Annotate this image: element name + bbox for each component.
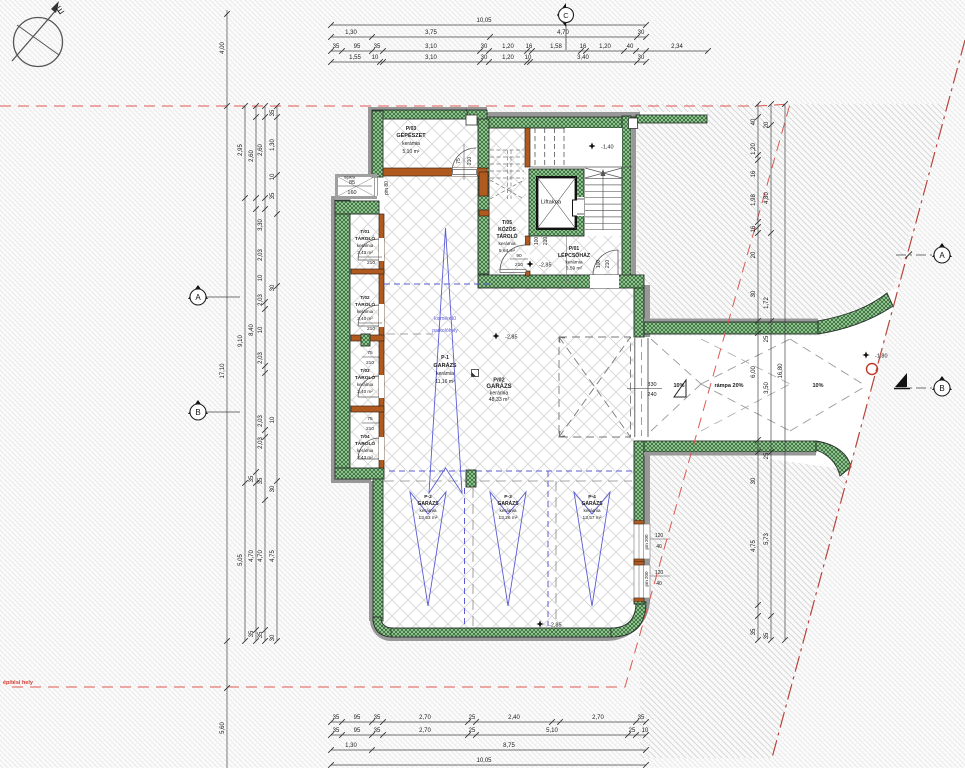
svg-text:kerámia: kerámia	[490, 391, 509, 397]
svg-text:30: 30	[638, 55, 645, 61]
svg-text:-1,40: -1,40	[601, 145, 614, 151]
svg-text:10: 10	[642, 728, 649, 734]
svg-text:T/01: T/01	[360, 229, 370, 234]
svg-text:25: 25	[469, 715, 476, 721]
svg-text:2,60: 2,60	[249, 150, 255, 162]
svg-text:95: 95	[354, 44, 361, 50]
svg-text:C: C	[563, 11, 569, 20]
svg-text:100: 100	[596, 260, 602, 269]
svg-text:4,75: 4,75	[270, 550, 276, 562]
svg-text:1,98: 1,98	[751, 194, 757, 206]
svg-text:TÁROLÓ: TÁROLÓ	[496, 232, 517, 240]
svg-text:kerámia: kerámia	[436, 371, 454, 377]
svg-text:3,59 m²: 3,59 m²	[566, 266, 583, 272]
svg-text:pm 200: pm 200	[644, 571, 649, 587]
svg-text:4,00: 4,00	[220, 42, 226, 54]
svg-text:35: 35	[270, 109, 276, 116]
svg-text:160: 160	[347, 190, 356, 196]
svg-text:A: A	[195, 293, 201, 302]
svg-text:210: 210	[543, 237, 549, 246]
svg-text:35: 35	[374, 44, 381, 50]
svg-text:3,30: 3,30	[258, 219, 264, 231]
svg-text:kerámia: kerámia	[402, 141, 420, 147]
svg-text:8,40: 8,40	[249, 324, 255, 336]
svg-text:-2,85: -2,85	[505, 335, 518, 341]
svg-text:GARÁZS: GARÁZS	[581, 500, 603, 507]
svg-text:kerámia: kerámia	[499, 508, 516, 514]
svg-text:210: 210	[605, 260, 611, 269]
svg-text:35: 35	[249, 630, 255, 637]
svg-text:4,75: 4,75	[751, 540, 757, 552]
svg-text:építési hely: építési hely	[3, 680, 34, 686]
svg-text:1,30: 1,30	[270, 139, 276, 151]
svg-text:1,55: 1,55	[349, 55, 361, 61]
svg-text:3,10: 3,10	[425, 44, 437, 50]
svg-text:LÉPCSŐHÁZ: LÉPCSŐHÁZ	[558, 251, 591, 259]
svg-text:10: 10	[258, 274, 264, 281]
svg-text:1,72: 1,72	[764, 297, 770, 309]
svg-text:95: 95	[354, 728, 361, 734]
svg-text:10: 10	[270, 173, 276, 180]
svg-text:2,03: 2,03	[258, 437, 264, 449]
svg-text:10: 10	[270, 416, 276, 423]
svg-text:30: 30	[270, 634, 276, 641]
svg-text:20: 20	[764, 121, 770, 128]
svg-text:13,63 m²: 13,63 m²	[419, 515, 438, 521]
svg-text:2,03: 2,03	[258, 415, 264, 427]
svg-text:2,03: 2,03	[258, 352, 264, 364]
svg-text:5,10 m²: 5,10 m²	[403, 149, 420, 155]
svg-text:-2,85: -2,85	[549, 623, 562, 629]
svg-text:T/04: T/04	[360, 434, 370, 439]
svg-text:GARÁZS: GARÁZS	[486, 383, 511, 390]
svg-text:10: 10	[372, 55, 379, 61]
svg-text:35: 35	[258, 477, 264, 484]
svg-text:pm 80: pm 80	[384, 181, 390, 195]
svg-text:kerámia: kerámia	[357, 448, 374, 453]
svg-text:P/01: P/01	[569, 246, 580, 252]
svg-text:rámpa 20%: rámpa 20%	[714, 383, 743, 389]
svg-text:kerámia: kerámia	[565, 260, 582, 266]
svg-text:2,70: 2,70	[592, 715, 604, 721]
svg-text:kerámia: kerámia	[357, 309, 374, 314]
svg-text:kerámia: kerámia	[583, 508, 600, 514]
svg-text:3,50: 3,50	[764, 382, 770, 394]
svg-text:10,05: 10,05	[476, 18, 492, 24]
svg-text:85: 85	[349, 180, 355, 186]
svg-text:35: 35	[751, 628, 757, 635]
svg-text:25: 25	[469, 728, 476, 734]
svg-text:1,58: 1,58	[550, 44, 562, 50]
svg-text:210: 210	[367, 326, 375, 332]
svg-text:10: 10	[258, 326, 264, 333]
svg-text:5,10: 5,10	[546, 728, 558, 734]
svg-text:1,20: 1,20	[502, 44, 514, 50]
svg-text:kerámia: kerámia	[357, 243, 374, 248]
svg-text:75: 75	[367, 350, 373, 356]
svg-text:GARÁZS: GARÁZS	[497, 500, 519, 507]
svg-text:16: 16	[751, 170, 757, 177]
svg-text:2,43 m²: 2,43 m²	[357, 250, 373, 255]
svg-text:T/02: T/02	[360, 295, 370, 300]
svg-text:90: 90	[516, 253, 522, 259]
svg-text:10%: 10%	[673, 383, 684, 389]
svg-text:35: 35	[374, 728, 381, 734]
svg-text:10,05: 10,05	[476, 758, 492, 764]
svg-text:-2,85: -2,85	[539, 263, 552, 269]
svg-text:13,57 m²: 13,57 m²	[583, 515, 602, 521]
svg-text:35: 35	[333, 44, 340, 50]
svg-text:2,34: 2,34	[671, 44, 683, 50]
svg-text:T/03: T/03	[360, 368, 370, 373]
svg-text:légakna: légakna	[344, 176, 355, 180]
svg-text:35: 35	[374, 715, 381, 721]
svg-text:A: A	[939, 251, 945, 260]
svg-text:35: 35	[764, 632, 770, 639]
svg-text:40: 40	[656, 544, 662, 550]
svg-text:330: 330	[647, 382, 656, 388]
svg-text:kerámia: kerámia	[357, 382, 374, 387]
svg-text:GARÁZS: GARÁZS	[417, 500, 439, 507]
svg-text:2,95: 2,95	[238, 144, 244, 156]
svg-text:120: 120	[655, 570, 664, 576]
svg-text:35: 35	[333, 728, 340, 734]
svg-text:210: 210	[366, 426, 374, 432]
svg-text:16: 16	[751, 225, 757, 232]
svg-text:B: B	[195, 408, 200, 417]
svg-text:40: 40	[627, 44, 634, 50]
svg-text:240: 240	[647, 392, 656, 398]
svg-text:5,05: 5,05	[238, 554, 244, 566]
svg-text:20: 20	[751, 251, 757, 258]
svg-text:210: 210	[515, 262, 523, 268]
svg-text:30: 30	[638, 30, 645, 36]
svg-text:2,03: 2,03	[258, 294, 264, 306]
svg-text:5,73: 5,73	[764, 533, 770, 545]
svg-text:25: 25	[764, 335, 770, 342]
svg-text:40: 40	[751, 118, 757, 125]
svg-text:30: 30	[751, 290, 757, 297]
svg-text:kerámia: kerámia	[419, 508, 436, 514]
svg-text:17,10: 17,10	[220, 363, 226, 379]
svg-text:120: 120	[655, 533, 664, 539]
svg-text:P/03: P/03	[406, 126, 417, 132]
svg-text:75: 75	[367, 416, 373, 422]
svg-text:30: 30	[270, 284, 276, 291]
svg-text:kerámia: kerámia	[498, 241, 515, 247]
svg-text:2,40: 2,40	[508, 715, 520, 721]
svg-text:10: 10	[525, 55, 532, 61]
svg-text:95: 95	[354, 715, 361, 721]
svg-text:1,20: 1,20	[751, 143, 757, 155]
svg-text:210: 210	[366, 360, 374, 366]
svg-text:210: 210	[467, 157, 473, 166]
svg-text:210: 210	[367, 260, 375, 266]
svg-text:4,70: 4,70	[557, 30, 569, 36]
svg-text:40: 40	[656, 581, 662, 587]
svg-text:3,10: 3,10	[425, 55, 437, 61]
svg-text:2,40 m²: 2,40 m²	[357, 316, 373, 321]
svg-text:35: 35	[333, 715, 340, 721]
svg-text:11,16 m²: 11,16 m²	[435, 379, 455, 385]
svg-text:9,10: 9,10	[238, 335, 244, 347]
svg-text:4,80: 4,80	[764, 192, 770, 204]
svg-text:75: 75	[456, 158, 462, 164]
svg-text:P-3: P-3	[504, 494, 512, 500]
svg-text:B: B	[939, 384, 944, 393]
svg-text:4,70: 4,70	[258, 550, 264, 562]
svg-text:parkolóhely: parkolóhely	[432, 328, 458, 334]
svg-text:35: 35	[258, 631, 264, 638]
svg-text:30: 30	[270, 485, 276, 492]
svg-text:5,64 m²: 5,64 m²	[499, 248, 516, 254]
svg-text:2,03: 2,03	[258, 249, 264, 261]
svg-text:Liftakna: Liftakna	[541, 200, 562, 206]
svg-text:P-2: P-2	[424, 494, 432, 500]
svg-text:2,43 m²: 2,43 m²	[357, 455, 373, 460]
svg-text:P-4: P-4	[588, 494, 596, 500]
svg-text:3,75: 3,75	[425, 30, 437, 36]
svg-text:5,60: 5,60	[220, 722, 226, 734]
svg-text:3,40: 3,40	[577, 55, 589, 61]
svg-text:6,00: 6,00	[751, 366, 757, 378]
svg-text:1,30: 1,30	[345, 30, 357, 36]
svg-text:2,70: 2,70	[419, 715, 431, 721]
svg-text:100: 100	[534, 237, 540, 246]
svg-text:35: 35	[249, 475, 255, 482]
svg-text:2,40 m²: 2,40 m²	[357, 389, 373, 394]
svg-text:1,20: 1,20	[502, 55, 514, 61]
svg-text:30: 30	[751, 477, 757, 484]
svg-text:2,60: 2,60	[258, 144, 264, 156]
svg-text:35: 35	[638, 715, 645, 721]
svg-text:P-1: P-1	[441, 355, 449, 361]
svg-text:8,75: 8,75	[503, 743, 515, 749]
svg-text:kisméretű: kisméretű	[434, 316, 456, 322]
svg-text:-1,80: -1,80	[875, 354, 888, 360]
svg-text:GÉPÉSZET: GÉPÉSZET	[396, 131, 426, 139]
svg-text:35: 35	[270, 192, 276, 199]
svg-text:1,20: 1,20	[599, 44, 611, 50]
svg-text:4,70: 4,70	[249, 550, 255, 562]
svg-text:2,70: 2,70	[419, 728, 431, 734]
svg-text:pm 200: pm 200	[644, 534, 649, 550]
svg-text:30: 30	[481, 44, 488, 50]
svg-text:10%: 10%	[812, 383, 823, 389]
svg-text:T/05: T/05	[502, 220, 512, 226]
svg-text:GARÁZS: GARÁZS	[433, 362, 457, 369]
svg-text:13,26 m²: 13,26 m²	[499, 515, 518, 521]
svg-text:1,30: 1,30	[345, 743, 357, 749]
svg-text:25: 25	[764, 452, 770, 459]
svg-text:48,33 m²: 48,33 m²	[489, 397, 510, 403]
svg-text:KÖZÖS: KÖZÖS	[498, 226, 516, 233]
svg-text:16,80: 16,80	[778, 363, 784, 379]
svg-text:30: 30	[481, 55, 488, 61]
svg-text:16: 16	[526, 44, 533, 50]
svg-text:25: 25	[629, 728, 636, 734]
svg-text:16: 16	[580, 44, 587, 50]
svg-text:P/02: P/02	[493, 378, 505, 384]
